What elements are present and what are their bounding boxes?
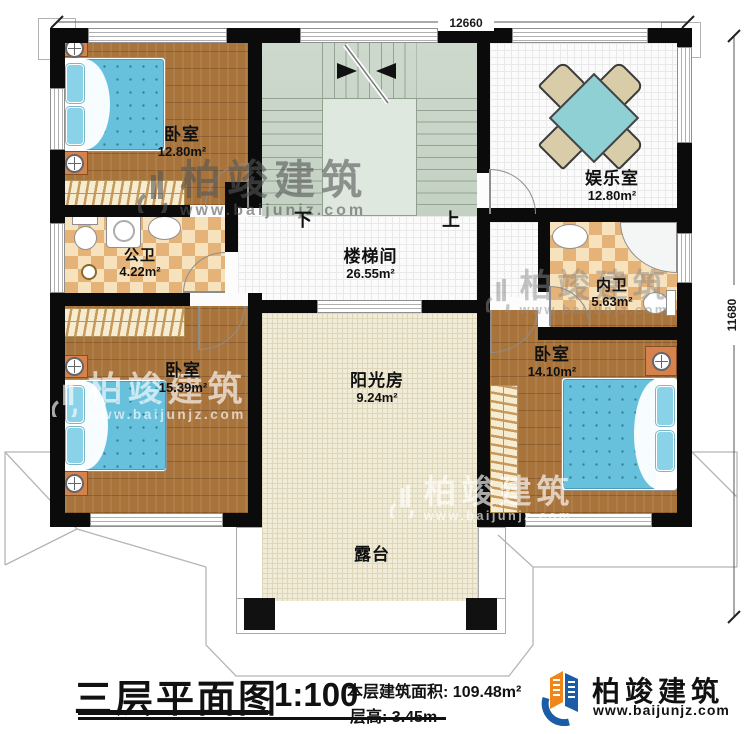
door-leaf — [489, 169, 491, 214]
wall-segment — [50, 28, 65, 88]
room-label-inner-bath: 内卫 5.63m² — [562, 278, 662, 309]
lamp-icon — [65, 474, 84, 493]
wardrobe — [490, 385, 518, 513]
lamp-icon — [65, 154, 84, 173]
window — [512, 28, 648, 43]
room-label-bedroom-top-left: 卧室 12.80m² — [132, 126, 232, 159]
wall-segment — [50, 293, 65, 527]
dimension-top: 12660 — [438, 15, 494, 31]
door-leaf — [198, 306, 200, 350]
floor-height-label: 层高: — [350, 709, 387, 726]
door-leaf — [247, 163, 249, 209]
window — [90, 513, 223, 527]
nightstand — [61, 471, 88, 496]
stair-treads-right — [417, 98, 477, 216]
room-label-bedroom-bottom-right: 卧室 14.10m² — [502, 346, 602, 379]
floor-plan-page: 卧室 12.80m² 娱乐室 12.80m² 楼梯间 26.55m² 公卫 4.… — [0, 0, 750, 734]
sink — [148, 216, 181, 240]
room-name: 娱乐室 — [562, 170, 662, 189]
door-opening — [490, 297, 538, 310]
window — [88, 28, 227, 43]
room-name: 阳光房 — [327, 372, 427, 391]
wall-segment — [538, 222, 550, 292]
floor-height-value: 3.45m — [392, 709, 437, 726]
room-name: 卧室 — [502, 346, 602, 365]
pillow — [656, 431, 674, 471]
nightstand — [61, 151, 88, 175]
wall-segment — [477, 208, 490, 527]
nightstand — [61, 355, 88, 378]
washer-door-icon — [113, 220, 135, 242]
room-area: 5.63m² — [562, 295, 662, 309]
room-area: 12.80m² — [132, 145, 232, 159]
room-label-sunroom: 阳光房 9.24m² — [327, 372, 427, 405]
door-leaf — [549, 286, 551, 326]
door-leaf — [183, 291, 225, 293]
pillow — [66, 386, 84, 423]
wall-segment — [677, 283, 692, 527]
wall-segment — [227, 28, 300, 43]
wall-segment — [488, 513, 525, 527]
floor-corridor-nook — [490, 222, 538, 297]
title-underline — [78, 710, 268, 715]
room-area: 9.24m² — [327, 391, 427, 405]
toilet-tank — [72, 216, 98, 225]
window — [300, 28, 438, 43]
lamp-icon — [652, 352, 671, 371]
room-area: 14.10m² — [502, 365, 602, 379]
room-name: 内卫 — [562, 278, 662, 295]
room-label-entertainment: 娱乐室 12.80m² — [562, 170, 662, 203]
pillow — [66, 64, 84, 103]
door-opening — [190, 293, 248, 306]
window — [677, 47, 692, 143]
door-opening — [225, 252, 238, 293]
brand-logo-icon — [536, 664, 586, 726]
room-name: 公卫 — [90, 248, 190, 265]
room-label-bedroom-bottom-left: 卧室 15.39m² — [133, 362, 233, 395]
room-label-terrace: 露台 — [322, 546, 422, 565]
window — [525, 513, 652, 527]
room-area: 15.39m² — [133, 381, 233, 395]
wardrobe — [63, 180, 185, 208]
floor-height-row: 层高: 3.45m — [350, 703, 437, 727]
terrace-pillar — [244, 598, 275, 630]
room-name: 卧室 — [132, 126, 232, 145]
stair-treads-top — [322, 43, 417, 98]
wall-segment — [538, 327, 692, 340]
room-area: 26.55m² — [318, 267, 423, 281]
nightstand — [645, 346, 677, 376]
toilet-tank — [666, 290, 676, 316]
sink — [552, 224, 588, 249]
room-label-stairwell: 楼梯间 26.55m² — [318, 248, 423, 281]
washing-machine — [106, 214, 141, 248]
room-label-public-bath: 公卫 4.22m² — [90, 248, 190, 279]
wall-segment — [50, 513, 90, 527]
wall-segment — [50, 205, 190, 217]
pillow — [66, 427, 84, 464]
wall-segment — [248, 293, 262, 527]
wall-segment — [422, 300, 477, 313]
stair-down-label: 下 — [294, 206, 312, 232]
floor-area-row: 本层建筑面积: 109.48m² — [347, 678, 521, 702]
plan-scale: 1:100 — [274, 676, 358, 714]
room-area: 12.80m² — [562, 189, 662, 203]
wall-segment — [677, 28, 692, 47]
window — [50, 223, 65, 293]
sliding-door — [317, 300, 422, 313]
wall-segment — [262, 300, 317, 313]
terrace-pillar — [466, 598, 497, 630]
dimension-right: 11680 — [724, 285, 740, 345]
brand-website: www.baijunjz.com — [593, 702, 730, 718]
stair-up-label: 上 — [442, 206, 460, 232]
floor-area-value: 109.48m² — [453, 684, 522, 701]
wall-segment — [50, 293, 190, 306]
room-name: 卧室 — [133, 362, 233, 381]
door-leaf — [490, 310, 492, 353]
wall-segment — [652, 513, 692, 527]
wardrobe — [63, 308, 185, 337]
window — [677, 233, 692, 283]
room-name: 楼梯间 — [318, 248, 423, 267]
room-name: 露台 — [322, 546, 422, 565]
room-area: 4.22m² — [90, 265, 190, 279]
window — [50, 88, 65, 150]
stair-treads-left — [262, 98, 322, 216]
pillow — [656, 386, 674, 426]
stair-landing — [322, 98, 417, 216]
wall-segment — [225, 208, 238, 252]
wall-segment — [477, 28, 490, 173]
wall-segment — [248, 28, 262, 185]
floor-area-label: 本层建筑面积: — [347, 684, 448, 701]
pillow — [66, 107, 84, 145]
lamp-icon — [65, 357, 84, 376]
toilet — [74, 226, 97, 250]
